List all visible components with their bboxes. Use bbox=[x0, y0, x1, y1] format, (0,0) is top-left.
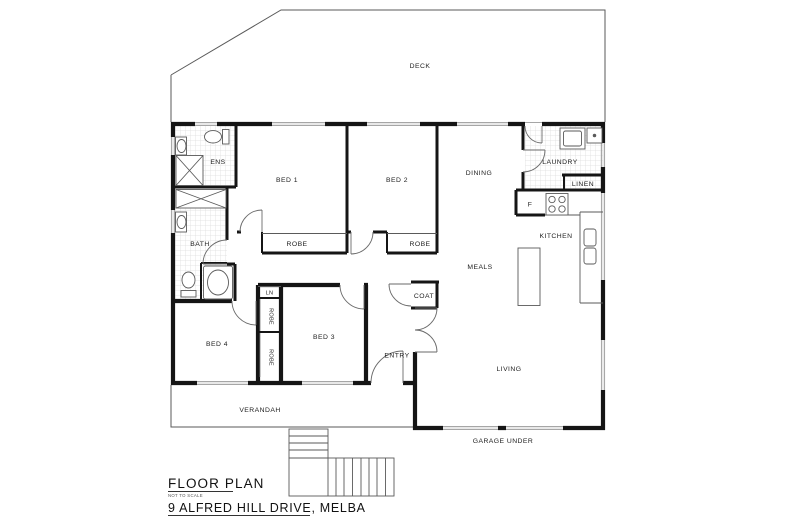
plan-title: FLOOR PLAN bbox=[168, 476, 265, 491]
room-label-laundry: LAUNDRY bbox=[542, 159, 578, 166]
room-label-deck: DECK bbox=[410, 63, 431, 70]
stove-icon bbox=[546, 194, 568, 216]
room-label-bath: BATH bbox=[190, 241, 209, 248]
room-label-fridge: F bbox=[528, 202, 533, 209]
room-label-robe-bed4-lower: ROBE bbox=[268, 349, 274, 366]
hall-robe-icon bbox=[176, 190, 226, 209]
room-label-bed4: BED 4 bbox=[206, 341, 228, 348]
minor-walls bbox=[201, 175, 564, 332]
bathtub-icon bbox=[204, 266, 233, 299]
room-label-verandah: VERANDAH bbox=[239, 407, 280, 414]
stairs bbox=[289, 429, 394, 496]
room-label-linen: LINEN bbox=[572, 181, 594, 188]
room-label-ens: ENS bbox=[210, 159, 225, 166]
verandah-outline bbox=[171, 385, 413, 427]
room-label-coat: COAT bbox=[414, 293, 434, 300]
room-label-living: LIVING bbox=[497, 366, 522, 373]
room-label-robe-bed1: ROBE bbox=[286, 241, 307, 248]
door-swings bbox=[203, 126, 545, 383]
plan-scale-note: NOT TO SCALE bbox=[168, 493, 203, 498]
room-label-meals: MEALS bbox=[467, 264, 492, 271]
bath-toilet-icon bbox=[181, 272, 196, 297]
room-label-dining: DINING bbox=[466, 170, 493, 177]
room-label-entry: ENTRY bbox=[384, 353, 409, 360]
room-label-robe-bed2: ROBE bbox=[409, 241, 430, 248]
deck-outline bbox=[171, 10, 605, 122]
plan-address: 9 ALFRED HILL DRIVE, MELBA bbox=[168, 501, 366, 515]
ens-toilet-icon bbox=[205, 130, 230, 145]
bath-vanity-icon bbox=[176, 212, 187, 232]
room-label-bed3: BED 3 bbox=[313, 334, 335, 341]
room-label-ln: LN bbox=[266, 291, 274, 297]
room-label-bed1: BED 1 bbox=[276, 177, 298, 184]
ens-shower-icon bbox=[176, 156, 203, 186]
room-label-garage: GARAGE UNDER bbox=[473, 438, 534, 445]
washing-machine-icon bbox=[587, 128, 602, 143]
laundry-tub-icon bbox=[560, 128, 585, 149]
floor-plan-sheet: DECK ENS BED 1 BED 2 DINING LAUNDRY LINE… bbox=[0, 0, 790, 527]
room-label-kitchen: KITCHEN bbox=[540, 233, 573, 240]
room-label-bed2: BED 2 bbox=[386, 177, 408, 184]
kitchen-sink-icon bbox=[584, 229, 596, 264]
floor-plan-drawing: DECK ENS BED 1 BED 2 DINING LAUNDRY LINE… bbox=[0, 0, 790, 527]
ens-vanity-icon bbox=[176, 137, 187, 155]
room-label-robe-bed4-upper: ROBE bbox=[268, 308, 274, 325]
